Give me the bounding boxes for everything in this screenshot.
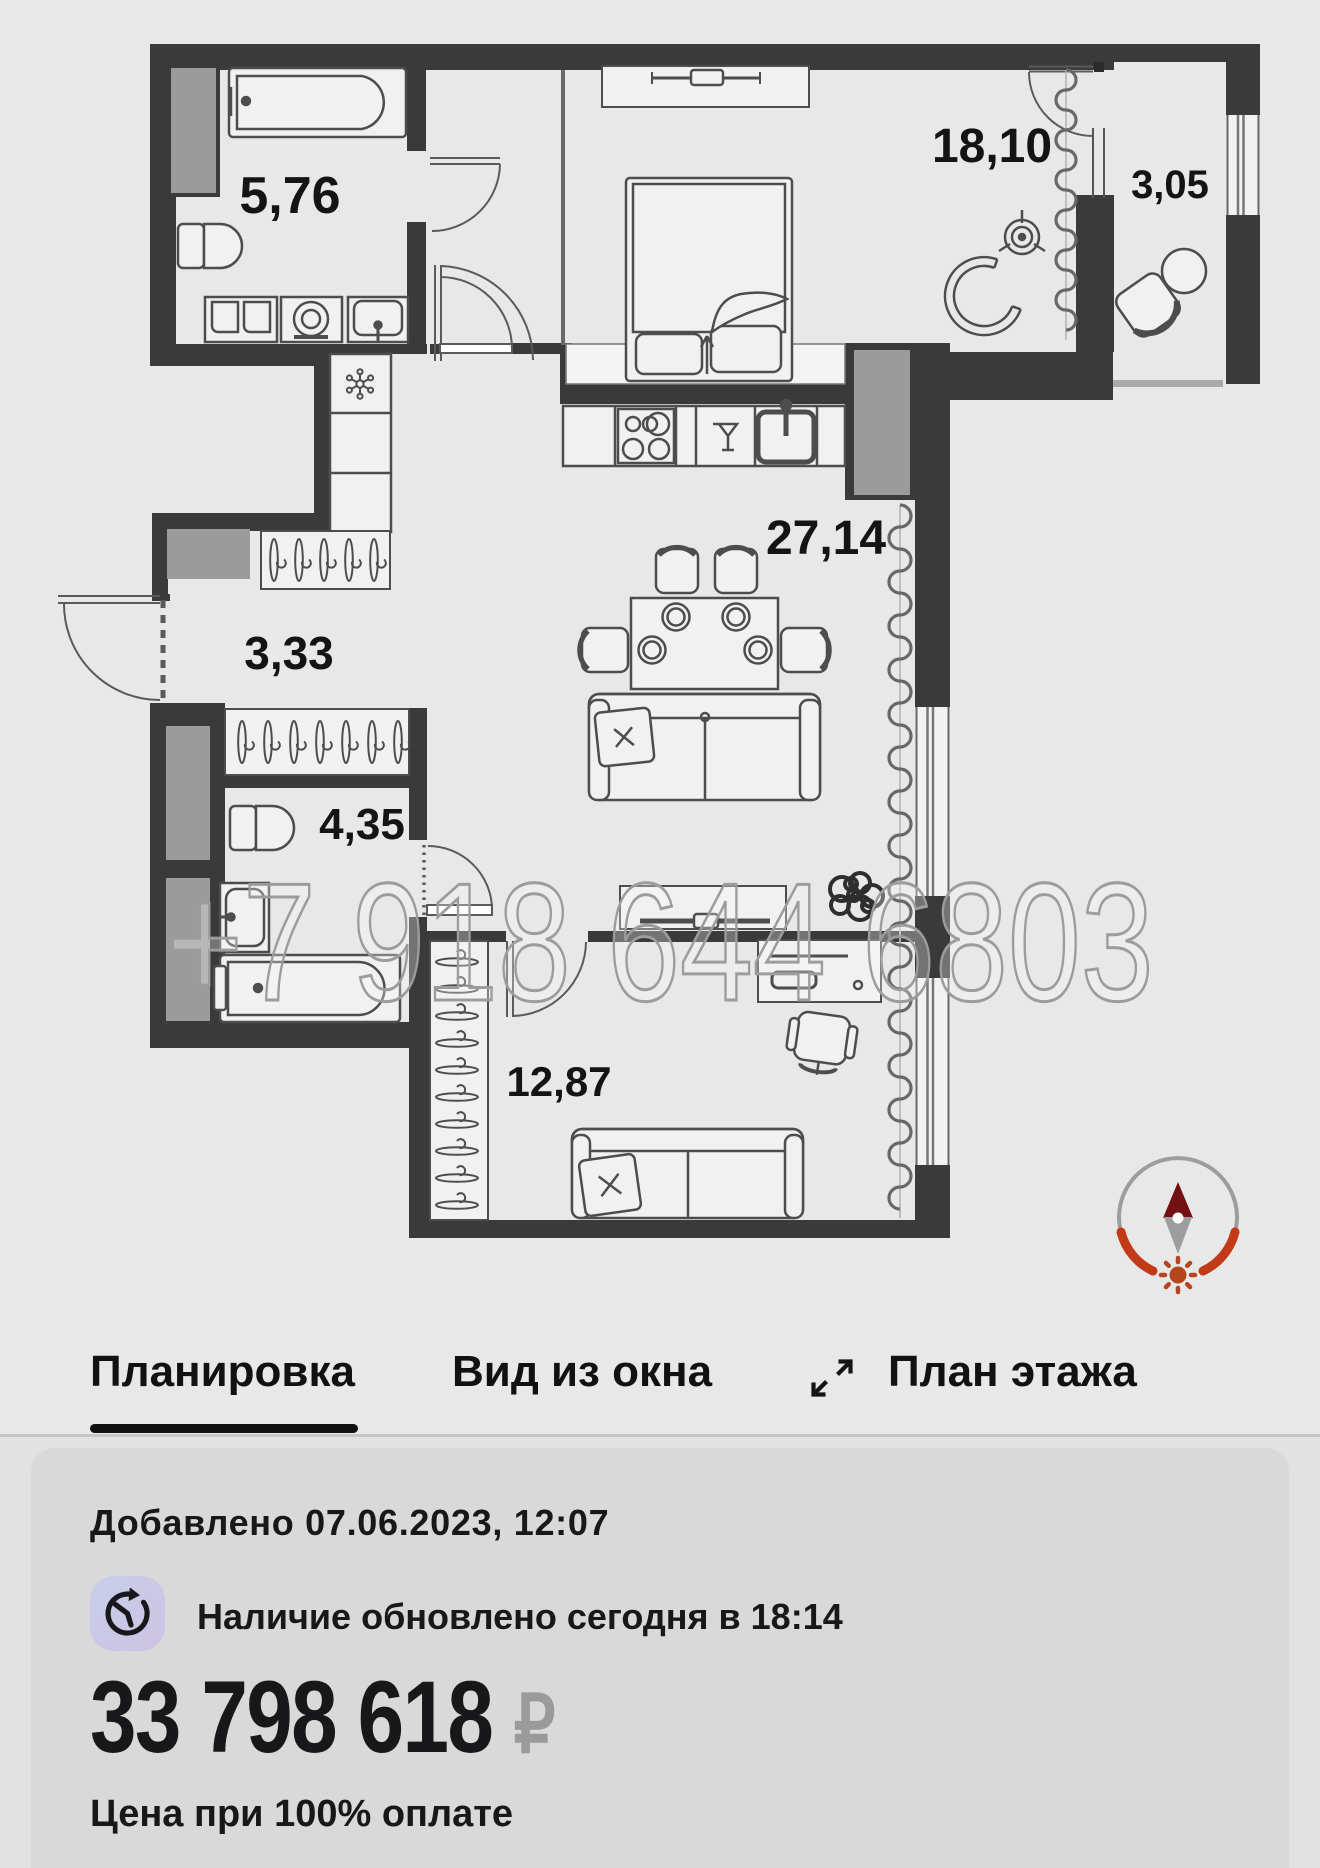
svg-text:3,05: 3,05 [1131,163,1209,207]
svg-text:18,10: 18,10 [932,120,1052,173]
svg-text:4,35: 4,35 [319,800,405,849]
svg-text:+7 918 644 6803: +7 918 644 6803 [166,848,1153,1035]
svg-text:12,87: 12,87 [506,1058,611,1105]
svg-text:3,33: 3,33 [244,627,334,679]
svg-text:5,76: 5,76 [239,167,340,225]
svg-text:27,14: 27,14 [766,512,886,565]
